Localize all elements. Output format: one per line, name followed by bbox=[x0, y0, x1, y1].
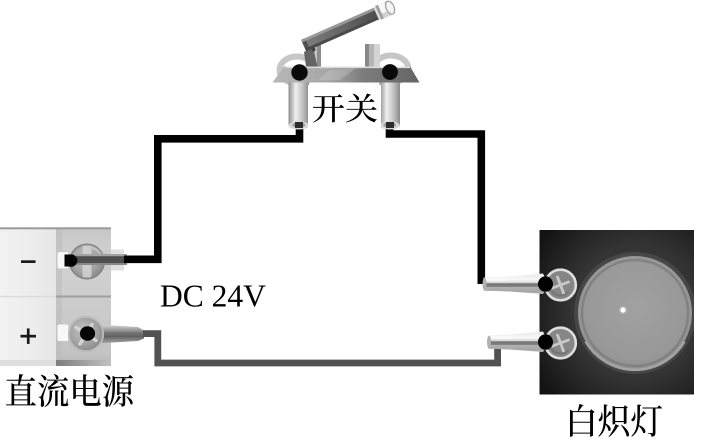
svg-text:DC 24V: DC 24V bbox=[160, 279, 266, 314]
